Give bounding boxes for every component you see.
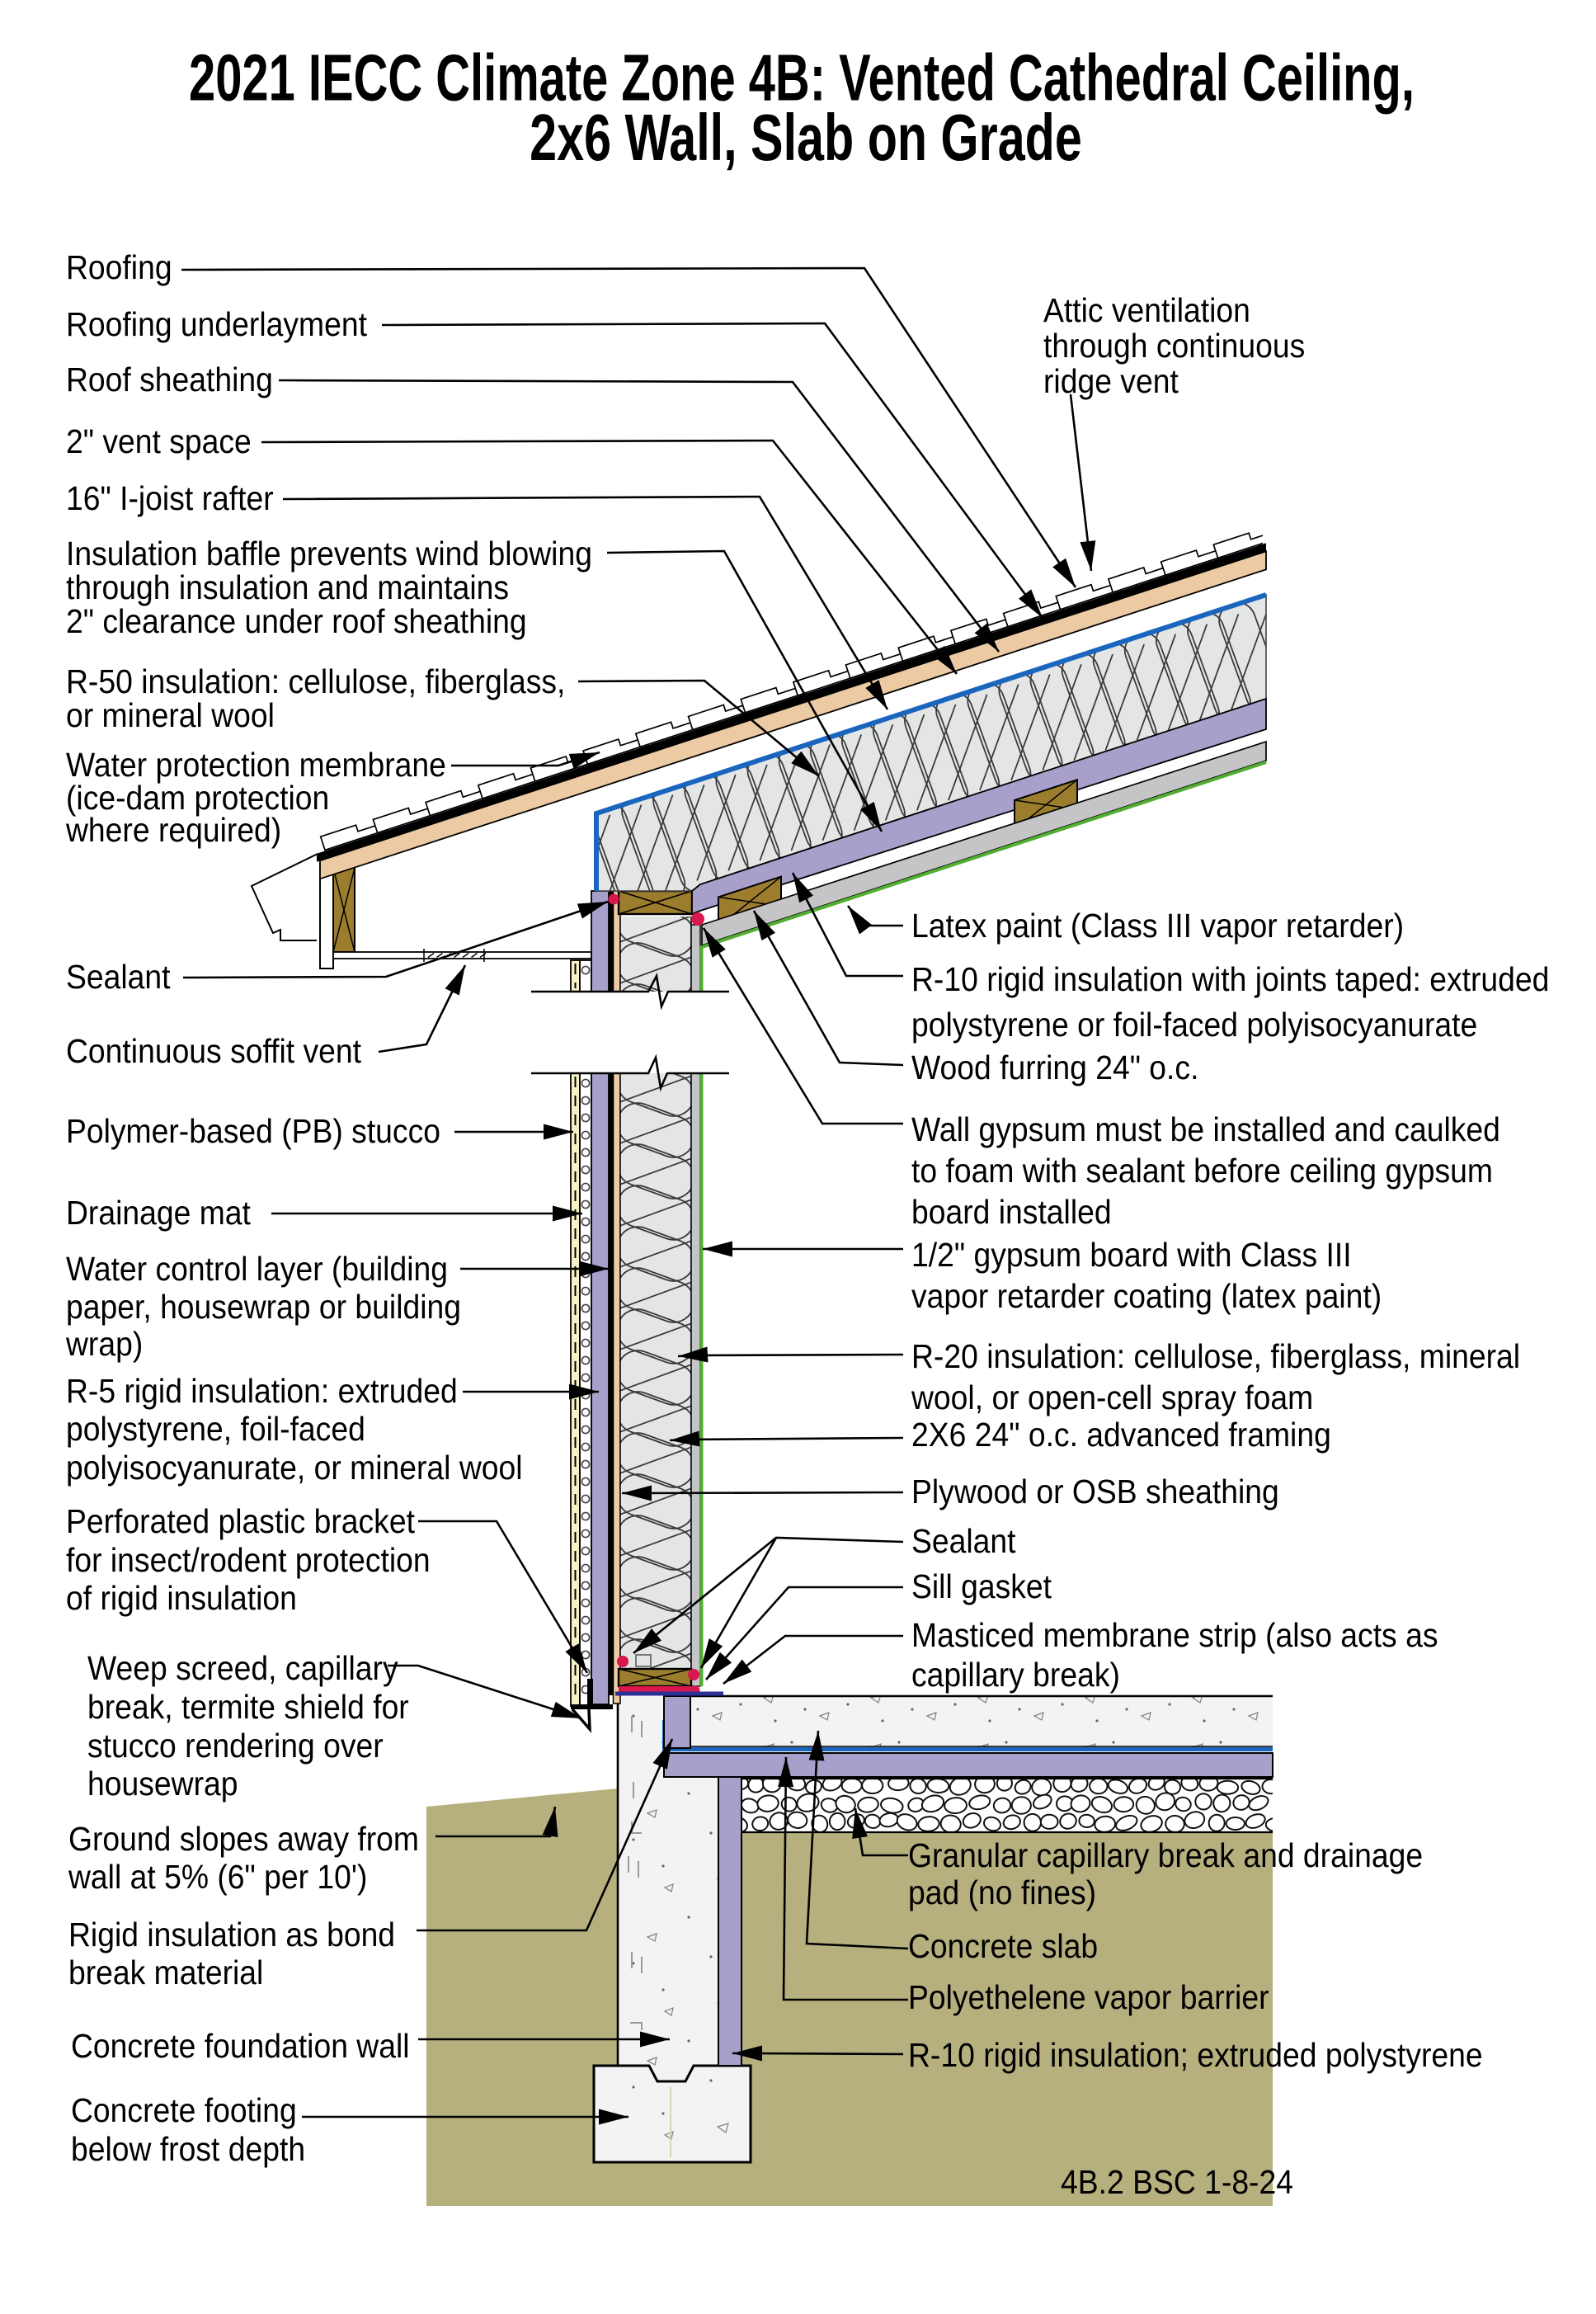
svg-text:to foam with sealant before ce: to foam with sealant before ceiling gyps…	[911, 1153, 1493, 1190]
svg-text:Concrete foundation wall: Concrete foundation wall	[71, 2029, 410, 2066]
svg-text:housewrap: housewrap	[87, 1766, 238, 1803]
svg-text:Roofing: Roofing	[66, 250, 172, 287]
svg-text:1/2" gypsum board with Class I: 1/2" gypsum board with Class III	[911, 1237, 1352, 1275]
svg-text:Wall gypsum must be installed: Wall gypsum must be installed and caulke…	[911, 1112, 1500, 1149]
svg-text:pad (no fines): pad (no fines)	[908, 1875, 1096, 1912]
svg-text:Continuous soffit vent: Continuous soffit vent	[66, 1034, 361, 1071]
svg-text:Latex paint (Class III vapor r: Latex paint (Class III vapor retarder)	[911, 908, 1404, 945]
svg-text:through insulation and maintai: through insulation and maintains	[66, 570, 509, 607]
svg-text:2x6 Wall, Slab on Grade: 2x6 Wall, Slab on Grade	[530, 100, 1082, 174]
svg-text:or mineral wool: or mineral wool	[66, 698, 275, 735]
svg-text:vapor retarder coating (latex: vapor retarder coating (latex paint)	[911, 1279, 1382, 1316]
svg-text:Weep screed, capillary: Weep screed, capillary	[87, 1651, 398, 1688]
svg-text:Water protection membrane: Water protection membrane	[66, 747, 446, 785]
svg-text:break material: break material	[68, 1955, 263, 1992]
svg-text:Perforated plastic bracket: Perforated plastic bracket	[66, 1504, 415, 1541]
svg-text:Sill gasket: Sill gasket	[911, 1569, 1052, 1606]
svg-text:for insect/rodent protection: for insect/rodent protection	[66, 1543, 431, 1580]
svg-text:16" I-joist rafter: 16" I-joist rafter	[66, 481, 274, 518]
svg-text:2" vent space: 2" vent space	[66, 424, 252, 461]
svg-text:Concrete footing: Concrete footing	[71, 2093, 297, 2130]
svg-text:R-10 rigid insulation with joi: R-10 rigid insulation with joints taped:…	[911, 962, 1549, 999]
svg-text:Sealant: Sealant	[66, 959, 171, 997]
svg-text:Rigid insulation as bond: Rigid insulation as bond	[68, 1917, 395, 1954]
svg-text:stucco rendering over: stucco rendering over	[87, 1728, 384, 1765]
svg-text:4B.2 BSC 1-8-24: 4B.2 BSC 1-8-24	[1061, 2165, 1293, 2202]
svg-text:Granular capillary break and d: Granular capillary break and drainage	[908, 1838, 1423, 1875]
svg-text:Water control layer (building: Water control layer (building	[66, 1251, 448, 1289]
svg-text:polystyrene or foil-faced poly: polystyrene or foil-faced polyisocyanura…	[911, 1007, 1477, 1044]
svg-text:ridge vent: ridge vent	[1043, 364, 1179, 401]
svg-text:polystyrene, foil-faced: polystyrene, foil-faced	[66, 1411, 365, 1449]
svg-text:Insulation baffle prevents win: Insulation baffle prevents wind blowing	[66, 536, 592, 573]
svg-text:capillary break): capillary break)	[911, 1657, 1120, 1694]
svg-text:wool, or open-cell spray foam: wool, or open-cell spray foam	[911, 1380, 1313, 1417]
svg-text:wrap): wrap)	[65, 1327, 143, 1364]
svg-text:Concrete slab: Concrete slab	[908, 1929, 1098, 1966]
svg-text:below frost depth: below frost depth	[71, 2132, 305, 2169]
svg-text:Wood furring 24" o.c.: Wood furring 24" o.c.	[911, 1050, 1198, 1087]
svg-text:Roof sheathing: Roof sheathing	[66, 362, 273, 399]
svg-text:Polymer-based (PB) stucco: Polymer-based (PB) stucco	[66, 1114, 440, 1151]
svg-text:Polyethelene vapor barrier: Polyethelene vapor barrier	[908, 1980, 1269, 2017]
svg-text:Plywood or OSB sheathing: Plywood or OSB sheathing	[911, 1474, 1279, 1511]
svg-text:through continuous: through continuous	[1043, 328, 1305, 365]
svg-text:board installed: board installed	[911, 1195, 1112, 1232]
svg-text:R-5 rigid insulation: extruded: R-5 rigid insulation: extruded	[66, 1374, 458, 1411]
svg-text:Roofing underlayment: Roofing underlayment	[66, 307, 367, 344]
svg-text:Ground slopes away from: Ground slopes away from	[68, 1822, 419, 1859]
svg-text:Attic ventilation: Attic ventilation	[1043, 293, 1250, 330]
svg-text:R-20 insulation: cellulose, fi: R-20 insulation: cellulose, fiberglass, …	[911, 1339, 1520, 1376]
svg-text:Drainage mat: Drainage mat	[66, 1195, 251, 1232]
svg-text:of rigid insulation: of rigid insulation	[66, 1581, 297, 1618]
svg-text:R-50 insulation: cellulose, fi: R-50 insulation: cellulose, fiberglass,	[66, 664, 565, 701]
svg-text:Sealant: Sealant	[911, 1524, 1016, 1561]
svg-text:2" clearance under roof sheath: 2" clearance under roof sheathing	[66, 604, 527, 641]
svg-text:polyisocyanurate, or mineral w: polyisocyanurate, or mineral wool	[66, 1450, 523, 1487]
svg-text:break, termite shield for: break, termite shield for	[87, 1690, 409, 1727]
svg-text:Masticed membrane strip (also: Masticed membrane strip (also acts as	[911, 1618, 1438, 1655]
svg-text:paper, housewrap or building: paper, housewrap or building	[66, 1289, 461, 1327]
svg-text:R-10 rigid insulation; extrude: R-10 rigid insulation; extruded polystyr…	[908, 2038, 1483, 2075]
svg-text:where required): where required)	[65, 813, 281, 850]
svg-text:wall at 5% (6" per 10'): wall at 5% (6" per 10')	[68, 1859, 367, 1897]
svg-text:2X6 24" o.c. advanced framing: 2X6 24" o.c. advanced framing	[911, 1417, 1331, 1454]
